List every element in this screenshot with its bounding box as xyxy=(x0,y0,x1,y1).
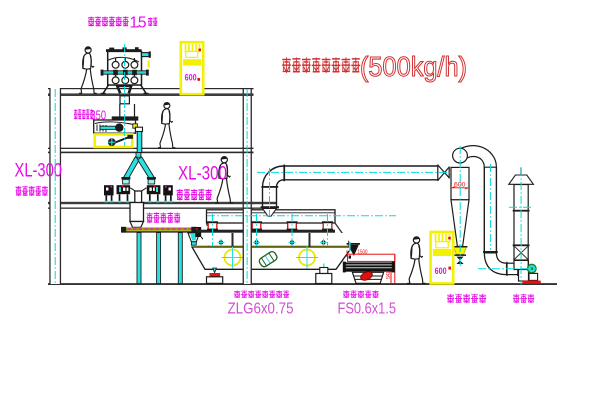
svg-text:XL-300: XL-300 xyxy=(178,164,227,185)
svg-text:541: 541 xyxy=(386,271,392,279)
svg-text:ZLG6x0.75: ZLG6x0.75 xyxy=(228,301,294,318)
svg-text:FS0.6x1.5: FS0.6x1.5 xyxy=(338,301,397,318)
svg-text:600: 600 xyxy=(435,266,447,276)
svg-text:(500kg/h): (500kg/h) xyxy=(360,51,467,82)
svg-text:1500: 1500 xyxy=(358,249,368,255)
svg-text:350: 350 xyxy=(91,108,107,123)
svg-text:600: 600 xyxy=(185,73,197,83)
svg-text:1.5: 1.5 xyxy=(130,15,147,32)
